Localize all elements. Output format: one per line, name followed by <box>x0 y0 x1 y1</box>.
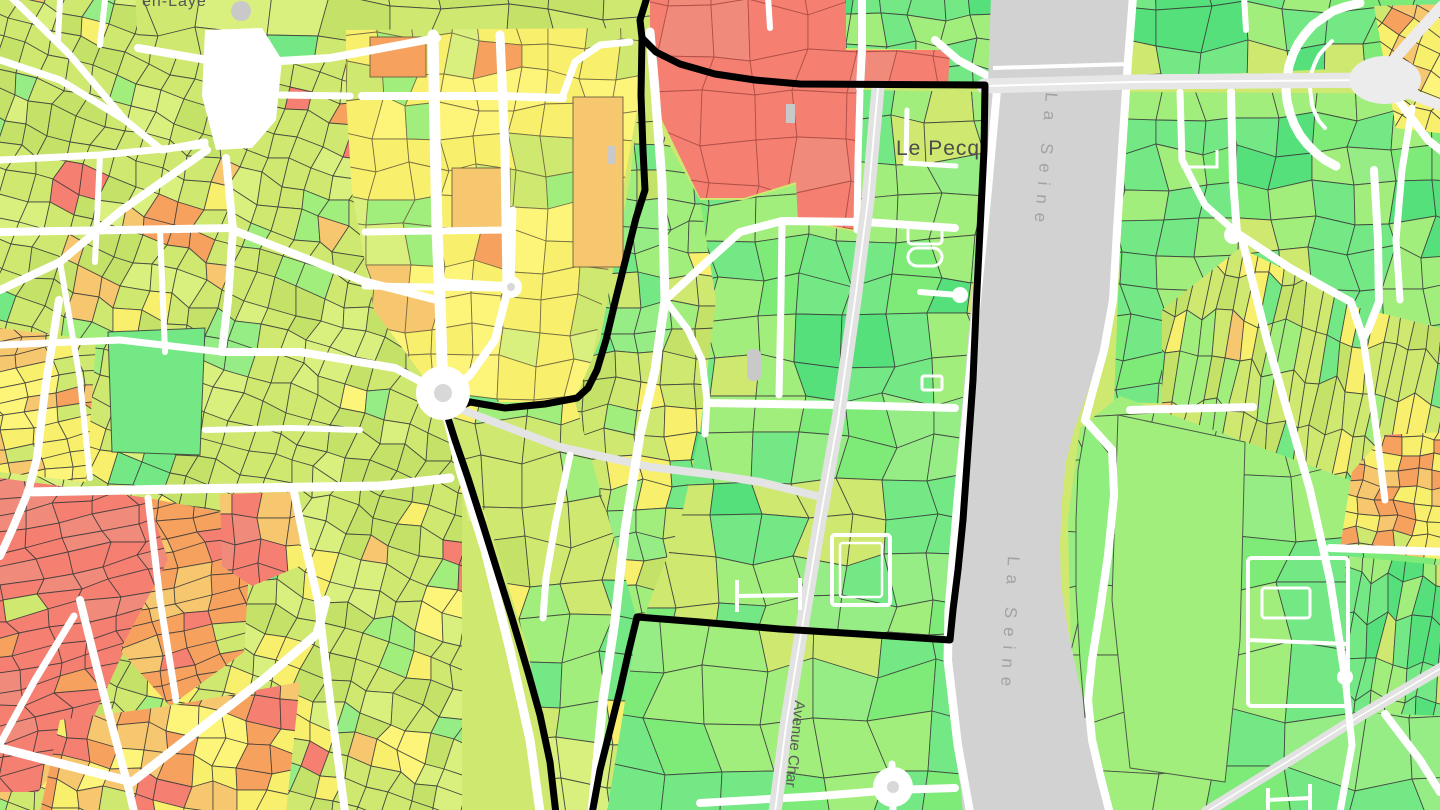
svg-text:Le Pecq: Le Pecq <box>896 137 980 160</box>
svg-text:en-Laye: en-Laye <box>142 0 207 10</box>
